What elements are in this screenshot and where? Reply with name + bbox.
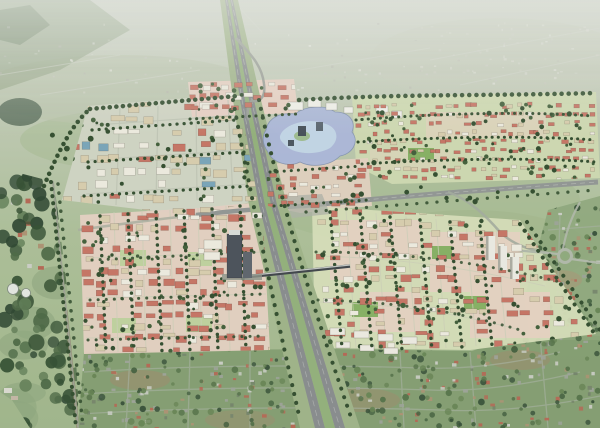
atmosphere-overlay bbox=[0, 0, 600, 428]
aerial-masterplan-rendering bbox=[0, 0, 600, 428]
rendering-canvas bbox=[0, 0, 600, 428]
